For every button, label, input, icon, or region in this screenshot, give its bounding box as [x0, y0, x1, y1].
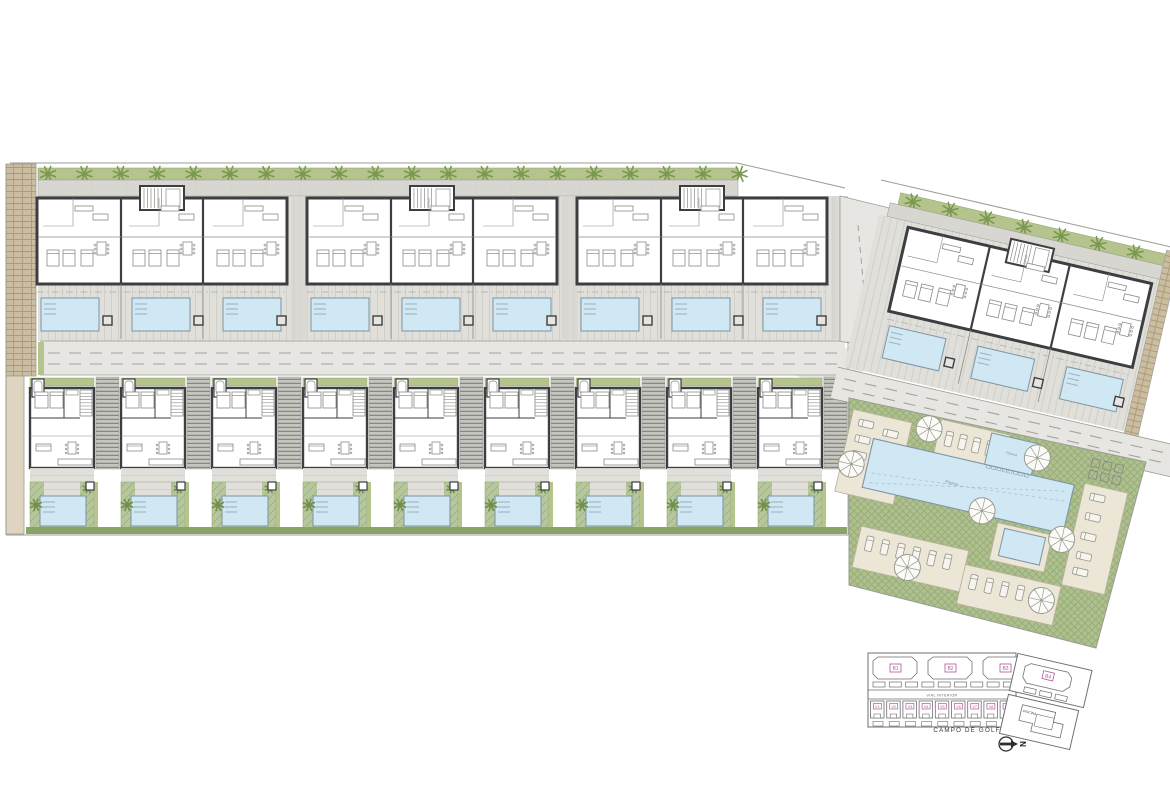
planter [450, 482, 458, 490]
block-pool [493, 298, 551, 331]
keyplan-villa-v2: V2 [887, 701, 901, 718]
planter [177, 482, 185, 490]
villa-plot-6 [485, 377, 574, 532]
planter [541, 482, 549, 490]
keyplan-villa-v4: V4 [919, 701, 933, 718]
apartment-block-1 [37, 186, 287, 339]
villa-pool [586, 496, 632, 526]
keyplan-villa-v1: V1 [871, 701, 885, 718]
keyplan-villa-label: V8 [989, 705, 994, 709]
planter [359, 482, 367, 490]
block-pool [581, 298, 639, 331]
villa-stairs [717, 390, 729, 416]
planter [268, 482, 276, 490]
block-pool [311, 298, 369, 331]
north-letter: N [1018, 741, 1027, 747]
villa-driveway [733, 377, 756, 469]
villa-pool [131, 496, 177, 526]
planter [723, 482, 731, 490]
keyplan-villa-label: V1 [875, 705, 880, 709]
villa-driveway [278, 377, 301, 469]
planter [373, 316, 382, 325]
block-pool [223, 298, 281, 331]
keyplan-villa-v3: V3 [903, 701, 917, 718]
keyplan-villa-label: V3 [908, 705, 913, 709]
block-pool [132, 298, 190, 331]
keyplan-block-b2: B2 [928, 657, 972, 679]
villa-stairs [80, 390, 92, 416]
keyplan-block-b1: B1 [873, 657, 917, 679]
planter [86, 482, 94, 490]
site-plan: PiscinaPiscinaB1B2B3VIAL INTERIORV1V2V3V… [6, 163, 1170, 751]
keyplan-villa-label: V2 [891, 705, 896, 709]
keyplan-villa-v7: V7 [968, 701, 982, 718]
keyplan-villa-v6: V6 [952, 701, 966, 718]
planter [103, 316, 112, 325]
villa-stairs [535, 390, 547, 416]
planter [277, 316, 286, 325]
keyplan-block-label: B2 [947, 666, 953, 672]
villa-stairs [626, 390, 638, 416]
villa-driveway [642, 377, 665, 469]
planter [547, 316, 556, 325]
block-pool [763, 298, 821, 331]
villa-driveway [187, 377, 210, 469]
keyplan-villa-v8: V8 [984, 701, 998, 718]
campo-de-golf-label: CAMPO DE GOLF [933, 727, 1000, 734]
planter [814, 482, 822, 490]
keyplan-villa-v5: V5 [935, 701, 949, 718]
villa-driveway [96, 377, 119, 469]
site-plan-page: PiscinaPiscinaB1B2B3VIAL INTERIORV1V2V3V… [0, 0, 1170, 785]
key-plan: B1B2B3VIAL INTERIORV1V2V3V4V5V6V7V8V9B4P… [868, 653, 1092, 751]
keyplan-villa-label: V5 [940, 705, 945, 709]
villa-pool [313, 496, 359, 526]
planter [194, 316, 203, 325]
villa-stairs [262, 390, 274, 416]
villas-bottom-hedge [26, 527, 847, 534]
villa-pool [677, 496, 723, 526]
site-plan-drawing: PiscinaPiscinaB1B2B3VIAL INTERIORV1V2V3V… [0, 0, 1170, 785]
apartment-block-3 [577, 186, 827, 339]
villa-plot-4 [303, 377, 392, 532]
street-label: VIAL INTERIOR [926, 694, 957, 698]
keyplan-villa-label: V4 [924, 705, 929, 709]
villa-plot-2 [121, 377, 210, 532]
villa-plot-1 [30, 377, 119, 532]
villa-pool [40, 496, 86, 526]
villa-plot-7 [576, 377, 665, 532]
planter [944, 357, 955, 368]
villa-stairs [808, 390, 820, 416]
villa-driveway [551, 377, 574, 469]
block-pool [672, 298, 730, 331]
planter [1113, 396, 1124, 407]
villa-stairs [171, 390, 183, 416]
villa-driveway [460, 377, 483, 469]
block-pool [41, 298, 99, 331]
villa-plot-3 [212, 377, 301, 532]
planter [734, 316, 743, 325]
stone-path-lower [6, 376, 24, 534]
villa-pool [222, 496, 268, 526]
villa-pool [404, 496, 450, 526]
keyplan-block-label: B1 [892, 666, 898, 672]
planter [643, 316, 652, 325]
villa-stairs [444, 390, 456, 416]
villa-driveway [369, 377, 392, 469]
keyplan-villa-label: V7 [972, 705, 977, 709]
planter [817, 316, 826, 325]
planter [464, 316, 473, 325]
planter [1032, 378, 1043, 389]
villa-plot-5 [394, 377, 483, 532]
apartment-block-2 [307, 186, 557, 339]
planter [632, 482, 640, 490]
villa-pool [768, 496, 814, 526]
stone-path [6, 164, 36, 376]
keyplan-block-label: B3 [1002, 666, 1008, 672]
villa-pool [495, 496, 541, 526]
block-pool [402, 298, 460, 331]
keyplan-villa-label: V6 [956, 705, 961, 709]
villa-stairs [353, 390, 365, 416]
villa-plot-9 [758, 377, 847, 532]
villa-plot-8 [667, 377, 756, 532]
